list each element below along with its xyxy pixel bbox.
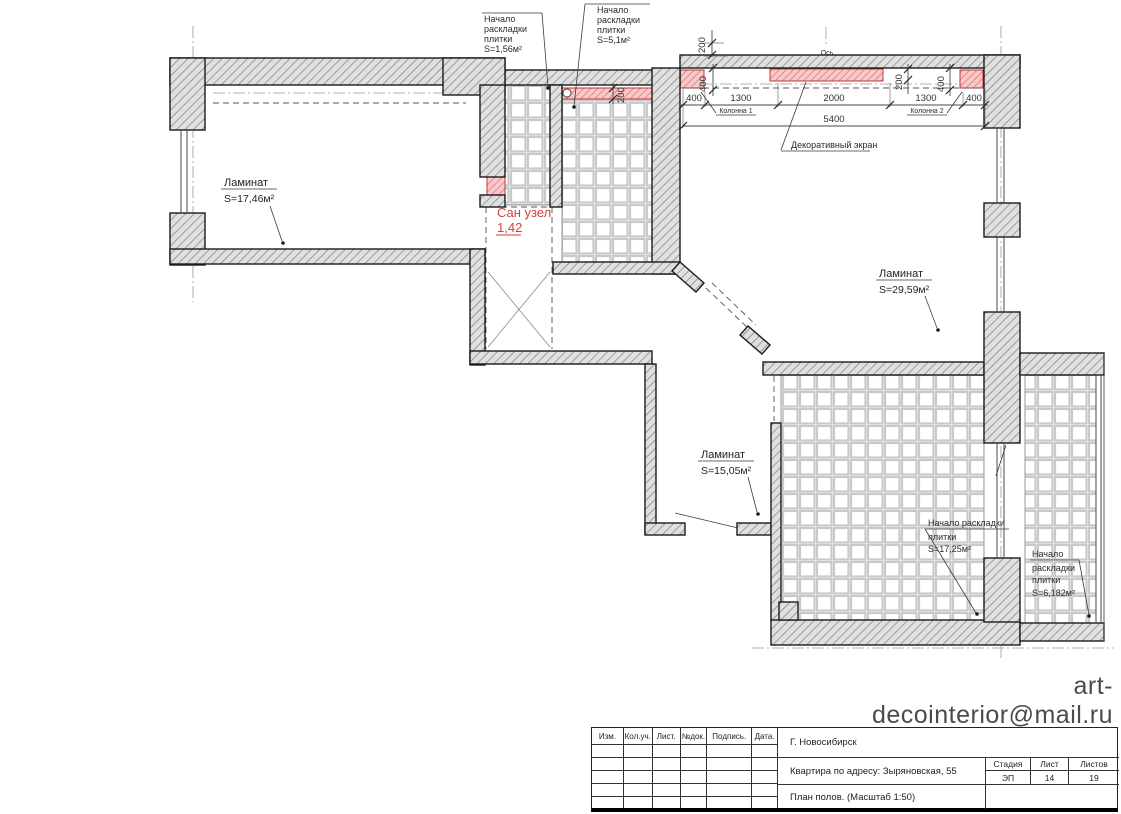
leader-dot	[1087, 614, 1091, 618]
ann-bath-4: S=1,56м²	[484, 44, 522, 54]
wall	[771, 423, 781, 621]
wall	[763, 362, 984, 375]
room1-material-label: Ламинат	[224, 177, 268, 189]
col-izm: Изм.	[592, 728, 624, 744]
leader-dot	[975, 612, 979, 616]
hall-area-label: S=15,05м²	[701, 465, 752, 477]
title-block-revision-table: Изм. Кол.уч. Лист. №док. Подпись. Дата.	[592, 728, 778, 808]
living-material-label: Ламинат	[879, 268, 923, 280]
wall	[984, 558, 1020, 622]
dim-1300-right: 1300	[915, 93, 936, 104]
wall-diagonal-stub	[672, 262, 704, 292]
tile-area-bathroom	[505, 85, 550, 205]
title-block-info: Г. Новосибирск Квартира по адресу: Зырян…	[778, 728, 1119, 808]
column-2-leader	[947, 92, 962, 113]
ann-bath-1: Начало	[484, 14, 515, 24]
ann-balcony-2: раскладки	[1032, 563, 1075, 573]
wall	[470, 249, 485, 365]
wall	[1020, 623, 1104, 641]
leader-dot	[546, 86, 550, 90]
sheets-value: 19	[1069, 771, 1119, 784]
wall	[480, 85, 505, 177]
empty-cell	[986, 785, 1119, 809]
ann-balcony-1: Начало	[1032, 549, 1063, 559]
city-cell: Г. Новосибирск	[778, 728, 1119, 758]
tile-area-balcony	[1025, 375, 1096, 623]
room1-area-label: S=17,46м²	[224, 193, 275, 205]
project-address-cell: Квартира по адресу: Зыряновская, 55	[778, 758, 986, 784]
leader-line	[748, 477, 757, 512]
hall-material-label: Ламинат	[701, 449, 745, 461]
axis-label: Ось	[821, 50, 834, 57]
leader-dot	[281, 241, 285, 245]
revision-table-row	[592, 758, 777, 771]
bathroom-area-label: 1,42	[497, 220, 522, 235]
diagonal-door-dashed-1	[706, 288, 750, 330]
ann-balcony-4: S=6,182м²	[1032, 588, 1075, 598]
dim-1300-left: 1300	[730, 93, 751, 104]
red-column-2	[960, 70, 983, 88]
dim-400-right: 400	[966, 93, 982, 104]
stage-label: Стадия	[986, 758, 1031, 770]
wall	[984, 55, 1020, 128]
ann-kitchen-3: S=17,25м²	[928, 544, 971, 554]
ann-balcony-3: плитки	[1032, 575, 1060, 585]
revision-table-row	[592, 771, 777, 784]
wall-diagonal-stub	[740, 326, 770, 354]
decorative-screen-label: Декоративный экран	[791, 140, 877, 150]
dim-v400-left: 400	[698, 76, 709, 92]
wall	[984, 312, 1020, 443]
dim-5400: 5400	[823, 114, 844, 125]
stage-sheet-table: Стадия Лист Листов ЭП 14 19	[986, 758, 1119, 784]
living-area-label: S=29,59м²	[879, 284, 930, 296]
wall	[645, 364, 656, 534]
leader-line	[270, 206, 282, 241]
revision-table-row	[592, 797, 777, 808]
red-tile-start-bathroom	[487, 177, 505, 195]
dim-400-left: 400	[686, 93, 702, 104]
revision-table-row	[592, 745, 777, 758]
wall	[553, 262, 680, 274]
wall	[984, 203, 1020, 237]
wall	[1020, 353, 1104, 375]
title-block: Изм. Кол.уч. Лист. №док. Подпись. Дата. …	[591, 727, 1118, 812]
sheet-label: Лист	[1031, 758, 1069, 770]
tile-start-marker-icon	[563, 89, 571, 97]
email-watermark: art-decointerior@mail.ru	[838, 672, 1113, 730]
sheet-value: 14	[1031, 771, 1069, 784]
wall	[170, 249, 485, 264]
wall	[652, 68, 680, 274]
diagonal-door-dashed-2	[712, 283, 756, 325]
ann-corr-4: S=5,1м²	[597, 35, 630, 45]
wall	[550, 85, 562, 207]
page: { "plan": { "labels": { "tile_start_bath…	[0, 0, 1121, 814]
ann-corr-2: раскладки	[597, 15, 640, 25]
ann-bath-2: раскладки	[484, 24, 527, 34]
dim-200-top: 200	[697, 37, 708, 53]
tile-area-kitchen	[781, 375, 984, 620]
ann-corr-3: плитки	[597, 25, 625, 35]
dim-200-col: 200	[894, 74, 905, 90]
wall	[470, 351, 652, 364]
wall	[170, 58, 205, 130]
ann-corr-1: Начало	[597, 5, 628, 15]
wall	[645, 523, 685, 535]
stage-value: ЭП	[986, 771, 1031, 784]
col-list: Лист.	[653, 728, 681, 744]
dim-2000: 2000	[823, 93, 844, 104]
red-decorative-screen	[770, 69, 883, 81]
column-2-label: Колонна 2	[910, 108, 943, 115]
leader-dot	[756, 512, 760, 516]
bathroom-name-label: Сан узел	[497, 205, 551, 220]
sheets-label: Листов	[1069, 758, 1119, 770]
sheet-name-cell: План полов. (Масштаб 1:50)	[778, 785, 986, 809]
floor-plan-drawing: 400 1300 2000 1300 400 5400 Колонна 1 Ко…	[0, 0, 1121, 660]
col-koluch: Кол.уч.	[624, 728, 653, 744]
col-podpis: Подпись.	[707, 728, 752, 744]
wall	[779, 602, 798, 620]
ann-bath-3: плитки	[484, 34, 512, 44]
revision-table-header: Изм. Кол.уч. Лист. №док. Подпись. Дата.	[592, 728, 777, 745]
wall	[771, 620, 1020, 645]
dim-200-strip: 200	[616, 87, 627, 103]
leader-dot	[572, 105, 576, 109]
wall	[680, 55, 1020, 68]
col-data: Дата.	[752, 728, 777, 744]
revision-table-row	[592, 784, 777, 797]
column-1-leader	[701, 92, 716, 113]
ann-kitchen-1: Начало раскладки	[928, 518, 1005, 528]
dim-v400-right: 400	[936, 76, 947, 92]
tile-area-corridor	[562, 99, 652, 262]
leader-line	[925, 296, 937, 328]
column-1-label: Колонна 1	[719, 108, 752, 115]
wall	[737, 523, 771, 535]
leader-dot	[936, 328, 940, 332]
col-ndok: №док.	[681, 728, 708, 744]
